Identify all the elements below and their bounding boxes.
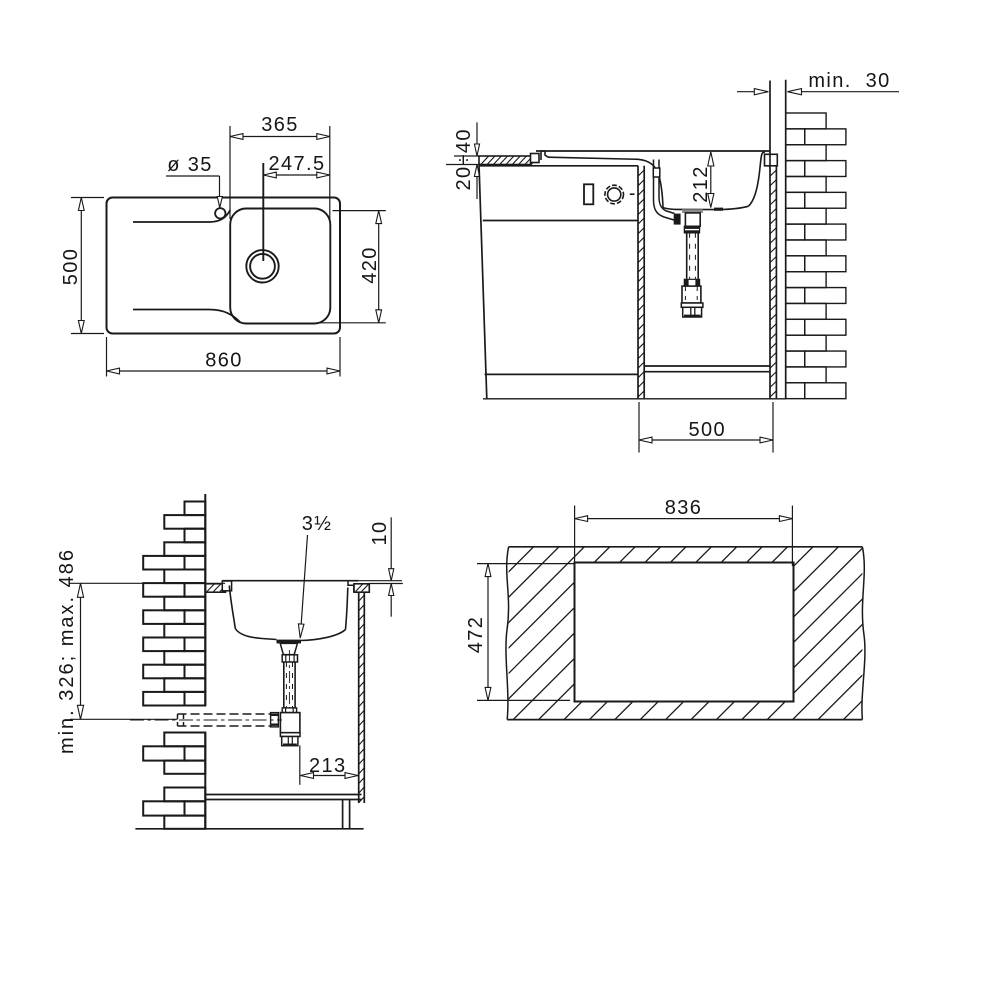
- svg-text:836: 836: [665, 497, 703, 519]
- svg-text:10: 10: [369, 520, 391, 545]
- svg-text:247.5: 247.5: [268, 153, 325, 175]
- svg-text:860: 860: [205, 350, 243, 372]
- svg-text:min. 326; max. 486: min. 326; max. 486: [56, 548, 78, 754]
- svg-text:500: 500: [689, 419, 727, 441]
- svg-text:3½: 3½: [302, 513, 333, 535]
- svg-text:20÷40: 20÷40: [453, 128, 475, 190]
- svg-text:212: 212: [690, 165, 712, 203]
- svg-text:min. 30: min. 30: [808, 70, 890, 92]
- svg-text:500: 500: [60, 248, 82, 286]
- svg-text:365: 365: [261, 114, 299, 136]
- svg-text:ø 35: ø 35: [167, 154, 213, 176]
- svg-text:420: 420: [359, 246, 381, 284]
- svg-text:213: 213: [309, 755, 347, 777]
- svg-text:472: 472: [465, 616, 487, 654]
